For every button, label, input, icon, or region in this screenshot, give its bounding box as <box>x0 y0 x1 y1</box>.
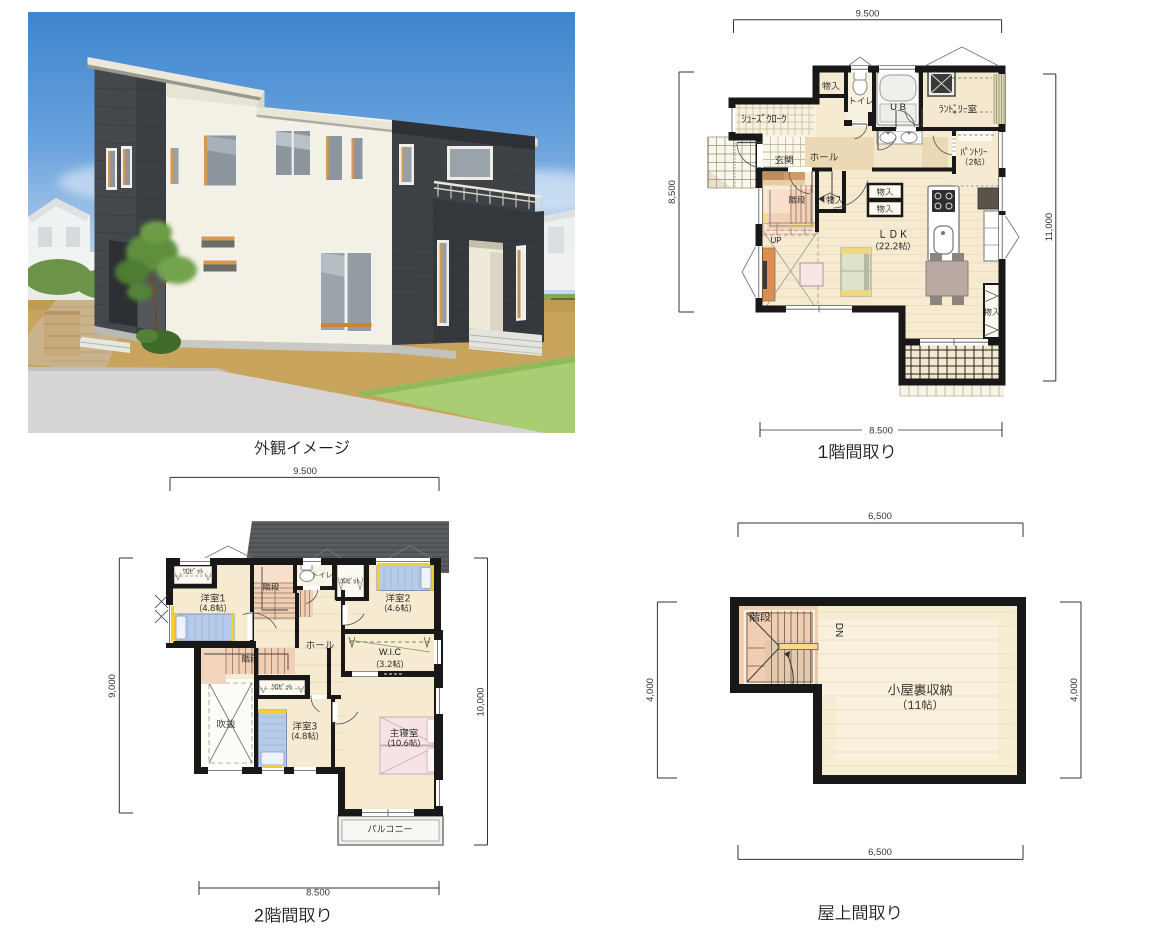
svg-text:U B: U B <box>890 102 906 113</box>
svg-text:9,000: 9,000 <box>107 674 118 698</box>
svg-text:9.500: 9.500 <box>293 466 317 477</box>
svg-text:8.500: 8.500 <box>869 426 893 437</box>
svg-text:8,500: 8,500 <box>667 180 678 204</box>
svg-text:6,500: 6,500 <box>868 511 892 522</box>
svg-text:8.500: 8.500 <box>306 888 330 899</box>
svg-text:UP: UP <box>770 236 781 245</box>
svg-text:6,500: 6,500 <box>868 847 892 858</box>
svg-text:9.500: 9.500 <box>856 9 880 20</box>
svg-text:4,000: 4,000 <box>645 678 656 702</box>
svg-text:DN: DN <box>833 623 844 637</box>
svg-text:W.I.C: W.I.C <box>379 647 401 657</box>
svg-text:4,000: 4,000 <box>1069 678 1080 702</box>
svg-text:10,000: 10,000 <box>476 687 487 716</box>
svg-text:11,000: 11,000 <box>1044 213 1055 241</box>
